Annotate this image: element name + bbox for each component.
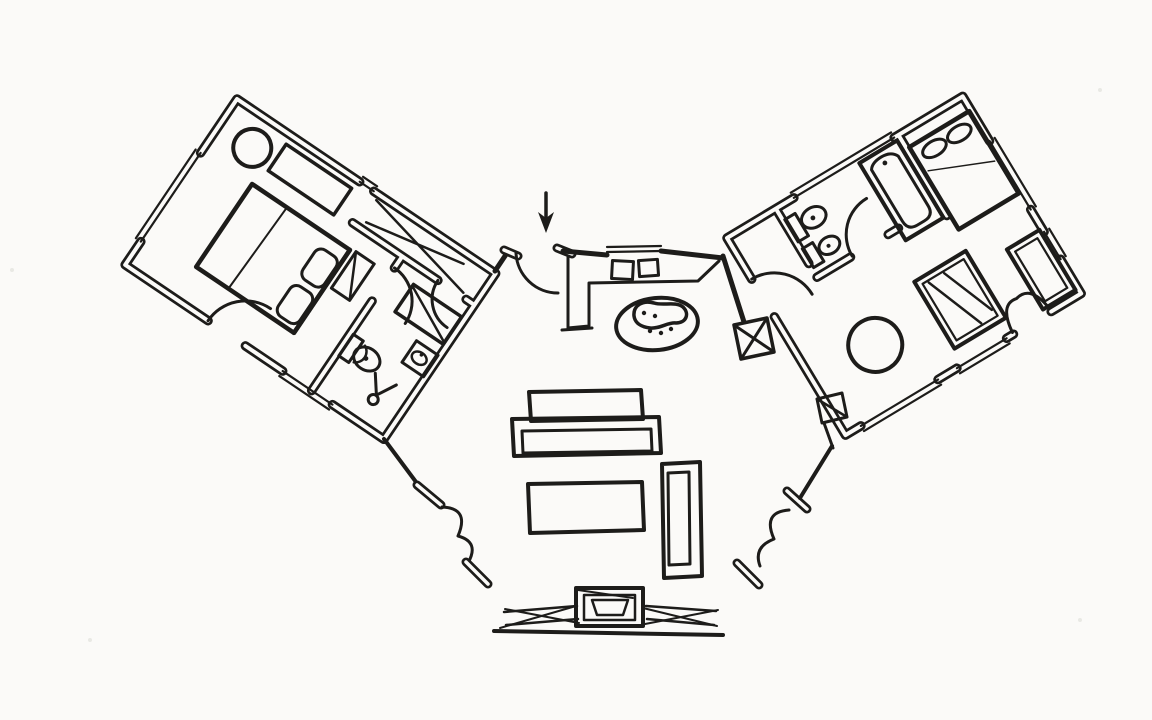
counter-end-cap — [562, 328, 592, 330]
paper-speck — [88, 638, 92, 642]
island-dot — [648, 329, 652, 333]
paper-speck — [1098, 88, 1102, 92]
island-dot — [669, 327, 673, 331]
island-dot — [659, 331, 663, 335]
paper-speck — [1078, 618, 1082, 622]
paper-speck — [10, 268, 14, 272]
island-dot — [642, 311, 646, 315]
floor-plan-sketch — [0, 0, 1152, 720]
island-dot — [653, 314, 657, 318]
floor-plan-canvas — [0, 0, 1152, 720]
